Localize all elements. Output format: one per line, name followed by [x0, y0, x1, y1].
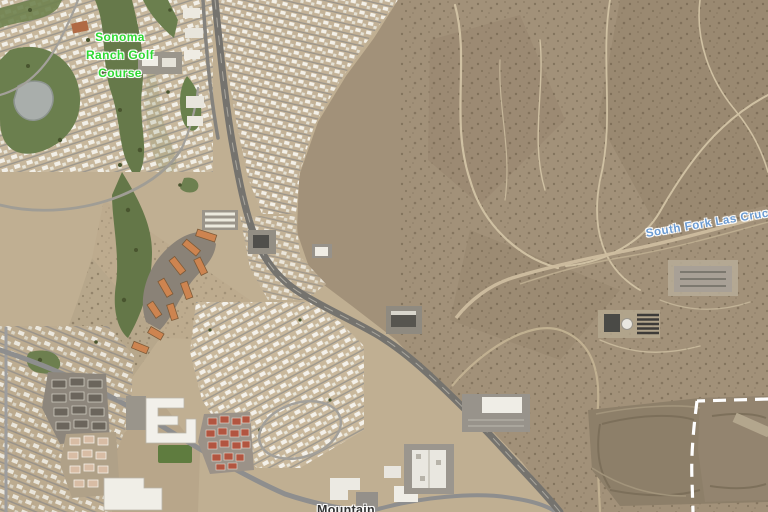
- street-label-mountain: Mountain: [317, 503, 375, 512]
- sports-field: [158, 445, 192, 463]
- storage-rows: [202, 210, 238, 230]
- golf-course-label-line3: Course: [58, 64, 182, 82]
- water-facility: [598, 310, 660, 338]
- substation-pad: [668, 260, 738, 296]
- graded-landfill-area: [588, 396, 768, 506]
- golf-course-label[interactable]: Sonoma Ranch Golf Course: [58, 28, 182, 82]
- satellite-map[interactable]: Sonoma Ranch Golf Course South Fork Las …: [0, 0, 768, 512]
- golf-course-label-line1: Sonoma: [58, 28, 182, 46]
- golf-course-label-line2: Ranch Golf: [58, 46, 182, 64]
